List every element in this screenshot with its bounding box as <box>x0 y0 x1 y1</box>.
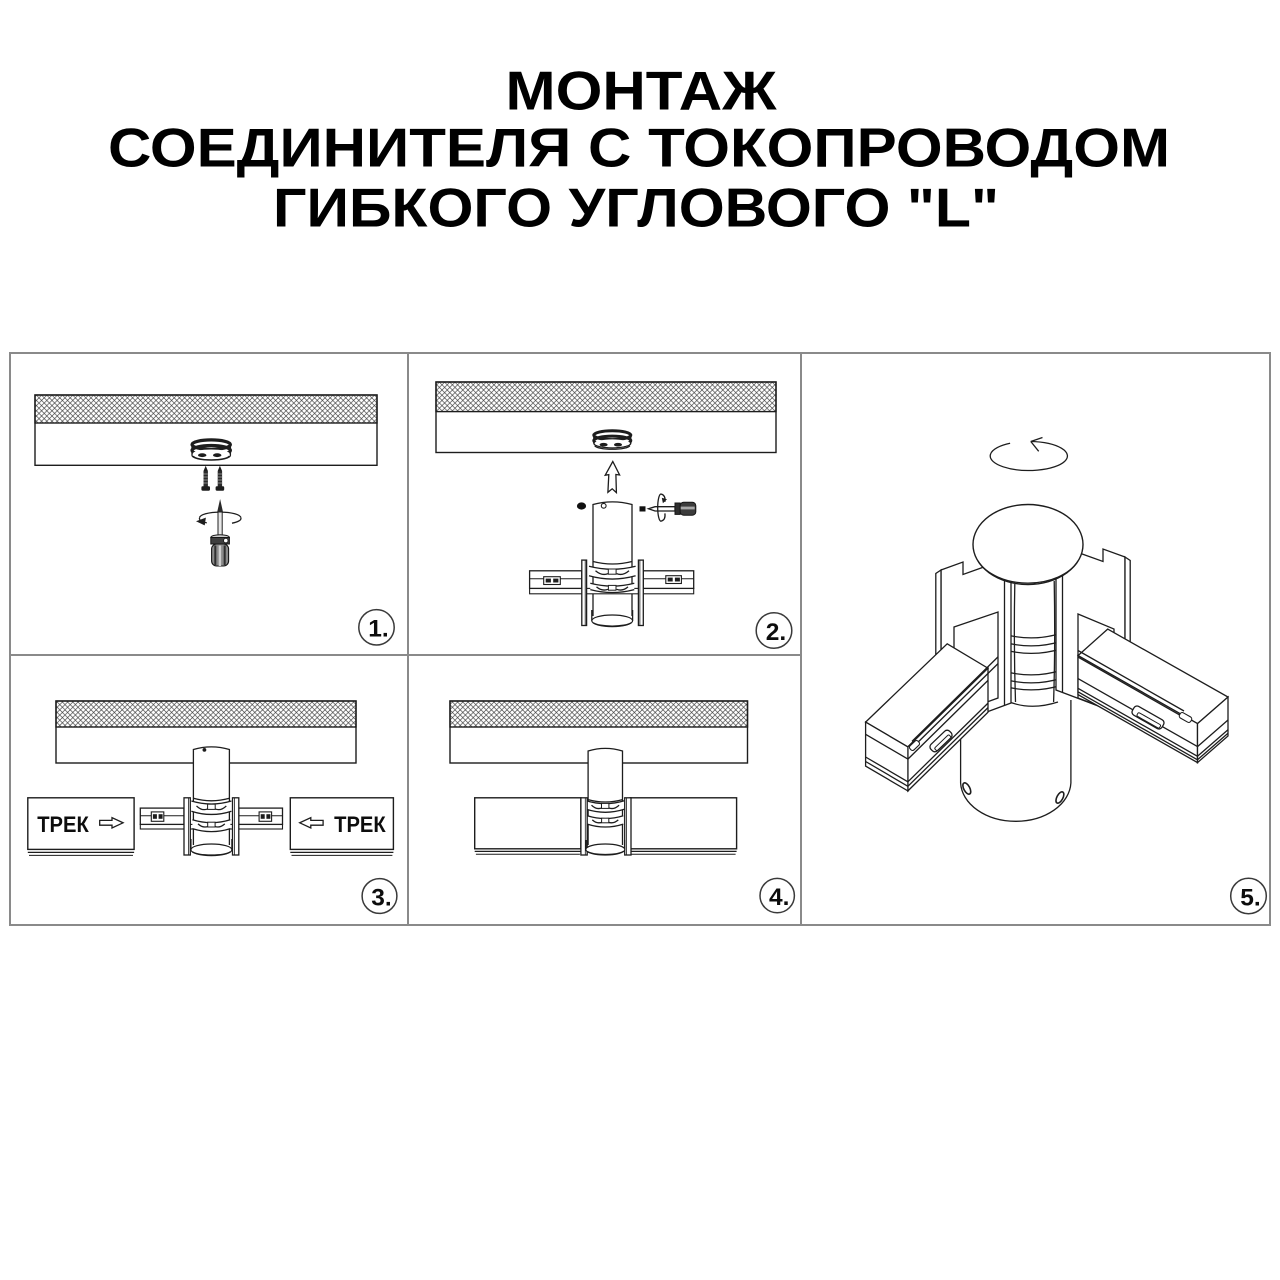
svg-text:4.: 4. <box>769 884 789 911</box>
svg-text:5.: 5. <box>1240 884 1260 911</box>
svg-text:3.: 3. <box>371 884 391 911</box>
svg-text:МОНТАЖ: МОНТАЖ <box>506 60 777 122</box>
svg-text:ТРЕК: ТРЕК <box>37 812 89 837</box>
svg-text:2.: 2. <box>766 619 786 646</box>
svg-text:ТРЕК: ТРЕК <box>334 812 386 837</box>
svg-text:ГИБКОГО УГЛОВОГО "L": ГИБКОГО УГЛОВОГО "L" <box>273 176 999 238</box>
svg-text:1.: 1. <box>368 616 388 643</box>
svg-text:СОЕДИНИТЕЛЯ С ТОКОПРОВОДОМ: СОЕДИНИТЕЛЯ С ТОКОПРОВОДОМ <box>108 116 1170 178</box>
